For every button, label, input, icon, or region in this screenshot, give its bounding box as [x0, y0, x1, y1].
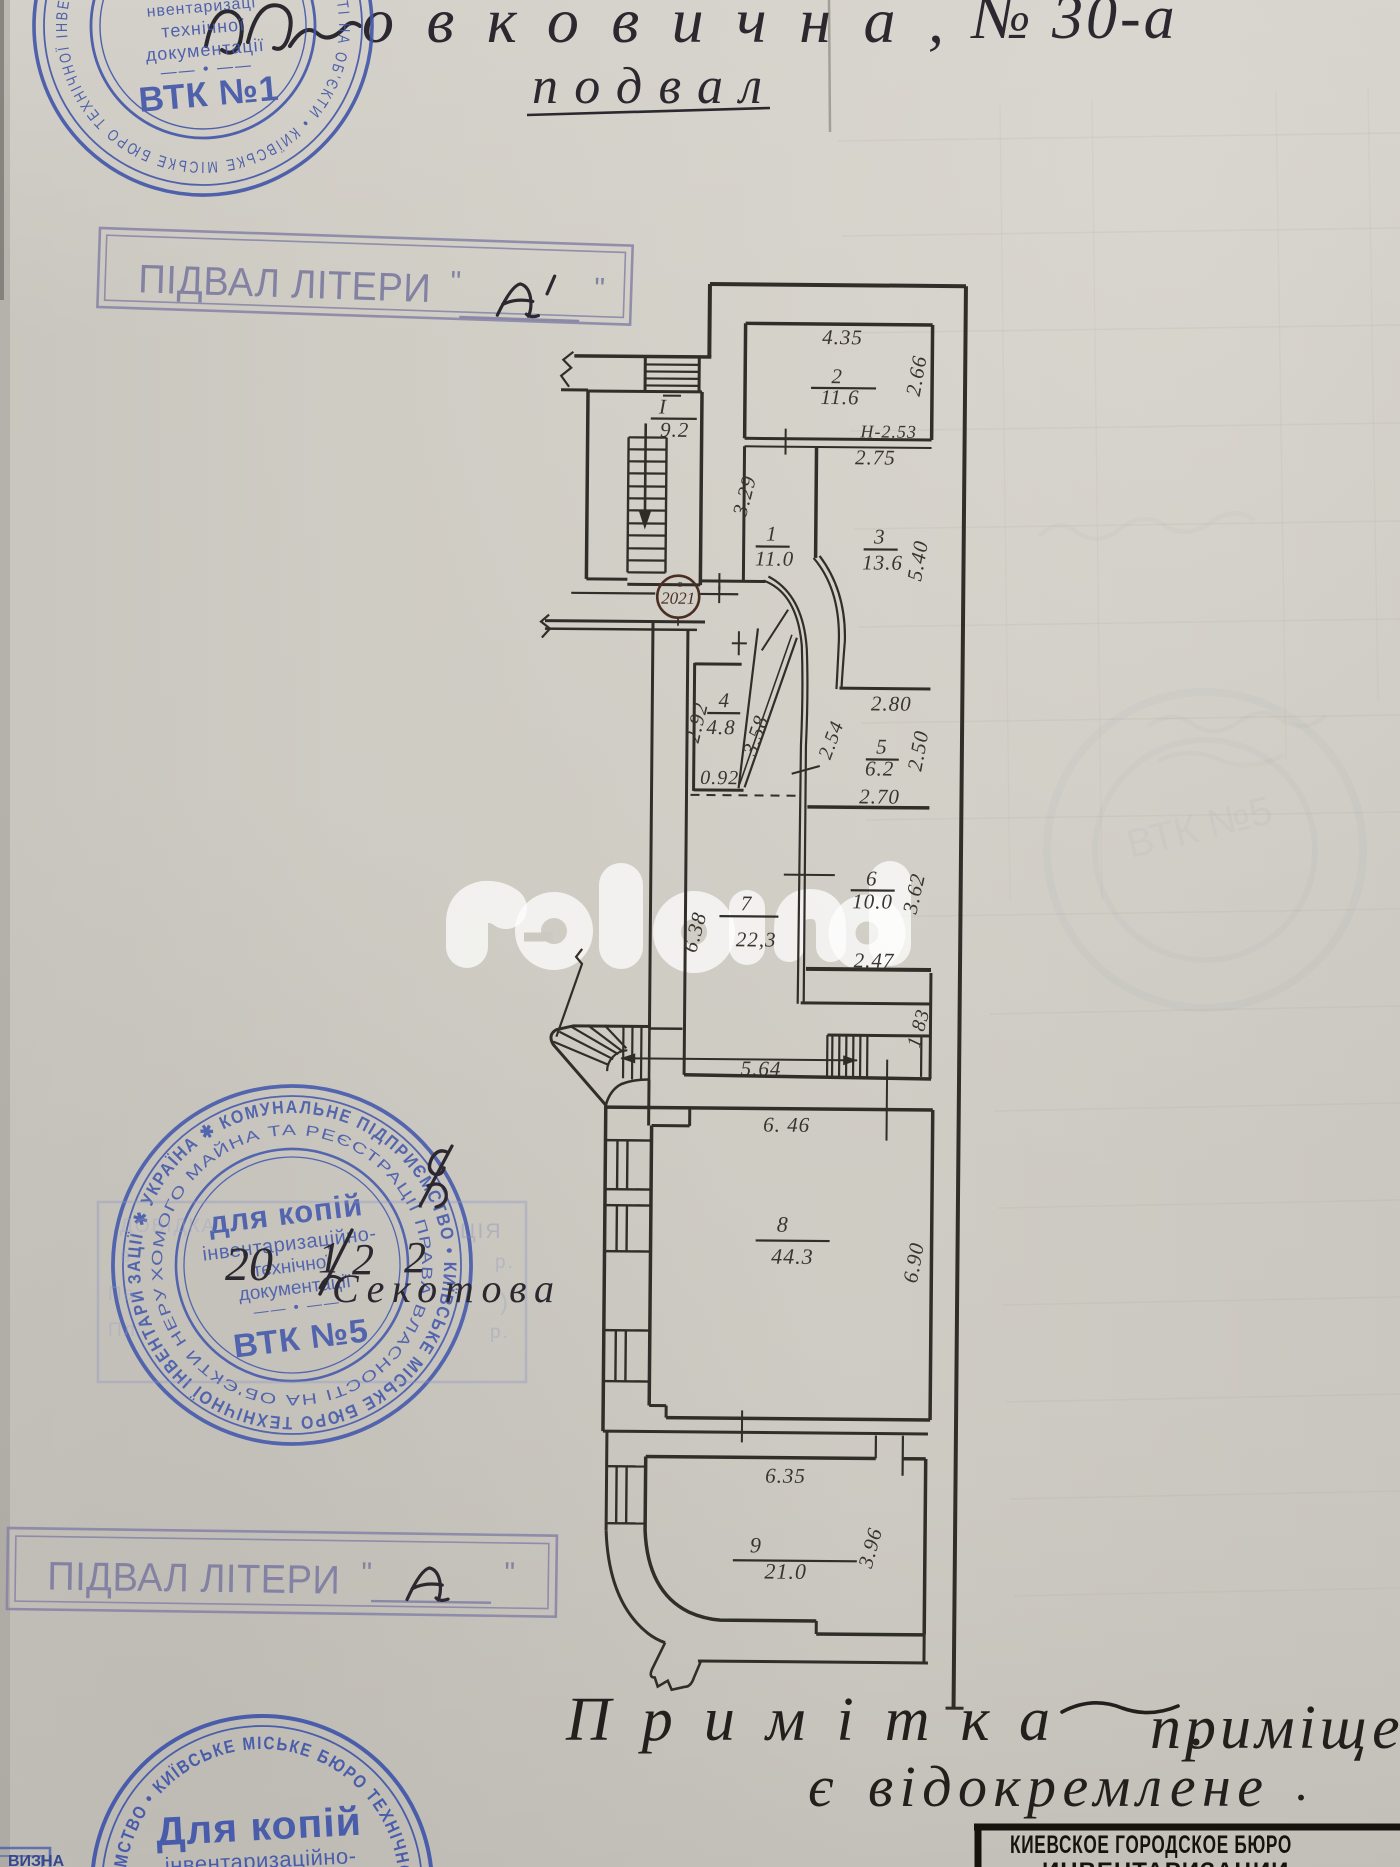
svg-text:21.0: 21.0 — [764, 1559, 807, 1584]
svg-text:р.: р. — [490, 1322, 510, 1343]
svg-text:10.0: 10.0 — [852, 889, 893, 913]
svg-text:22,3: 22,3 — [736, 927, 777, 951]
svg-text:.: . — [1296, 1755, 1309, 1811]
svg-text:I: I — [658, 395, 667, 419]
svg-text:2021: 2021 — [661, 589, 695, 608]
svg-text:ЦІЯ: ЦІЯ — [460, 1220, 503, 1243]
svg-text:4.35: 4.35 — [822, 325, 863, 349]
svg-text:6.35: 6.35 — [765, 1464, 806, 1488]
svg-text:": " — [594, 272, 606, 305]
svg-text:6. 46: 6. 46 — [763, 1112, 810, 1136]
svg-text:Пл: Пл — [108, 1320, 137, 1341]
svg-text:КИЕВСКОЕ ГОРОДСКОЕ БЮРО: КИЕВСКОЕ ГОРОДСКОЕ БЮРО — [1010, 1831, 1292, 1859]
svg-text:": " — [504, 1557, 515, 1590]
svg-text:Н-2.53: Н-2.53 — [859, 421, 917, 442]
svg-text:7: 7 — [741, 891, 753, 915]
svg-text:5: 5 — [876, 734, 888, 758]
svg-text:": " — [450, 266, 462, 299]
svg-text:9.2: 9.2 — [660, 418, 689, 442]
svg-text:44.3: 44.3 — [771, 1244, 814, 1269]
svg-text:3: 3 — [873, 524, 886, 548]
svg-text:9: 9 — [750, 1532, 762, 1557]
svg-text:2.70: 2.70 — [859, 784, 900, 808]
svg-text:ИНВЕНТАРИЗАЦИИ: ИНВЕНТАРИЗАЦИИ — [1042, 1858, 1289, 1867]
svg-text:2.80: 2.80 — [871, 691, 912, 715]
svg-text:ДОВІДКА: ДОВІДКА — [120, 1216, 216, 1237]
svg-text:2.75: 2.75 — [855, 445, 896, 469]
svg-text:ВИЗНА: ВИЗНА — [8, 1853, 65, 1867]
svg-text:1: 1 — [766, 521, 778, 545]
svg-text:Па: Па — [108, 1284, 136, 1305]
svg-text:відокремлене: відокремлене — [868, 1754, 1268, 1819]
svg-text:в: в — [678, 579, 683, 589]
svg-text:2.47: 2.47 — [854, 948, 895, 972]
svg-text:4: 4 — [718, 688, 730, 712]
svg-text:4.8: 4.8 — [706, 715, 735, 739]
svg-text:0.92: 0.92 — [700, 767, 739, 789]
svg-text:11.0: 11.0 — [755, 546, 794, 570]
svg-text:в: в — [120, 1246, 132, 1267]
svg-text:": " — [361, 1557, 372, 1590]
svg-text:ПІДВАЛ ЛІТЕРИ: ПІДВАЛ ЛІТЕРИ — [47, 1555, 341, 1603]
svg-text:8: 8 — [777, 1212, 789, 1237]
svg-text:6: 6 — [866, 866, 878, 890]
svg-text:приміще: приміще — [1150, 1694, 1400, 1762]
svg-text:13.6: 13.6 — [862, 550, 903, 574]
svg-text:є: є — [808, 1754, 834, 1819]
svg-text:20: 20 — [225, 1238, 273, 1291]
svg-text:№ 30-а: № 30-а — [970, 0, 1178, 52]
